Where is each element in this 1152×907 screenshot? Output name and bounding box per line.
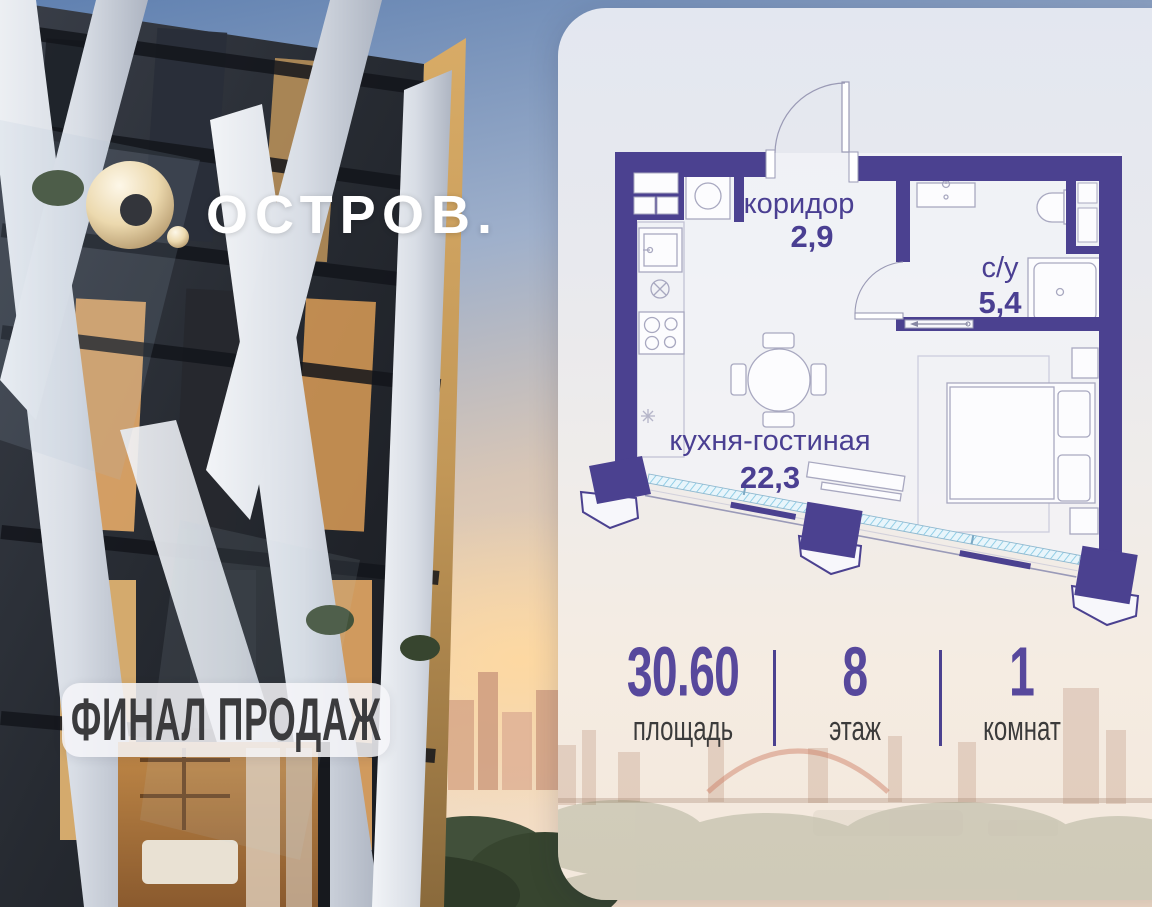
stove-icon — [639, 312, 684, 354]
room-label-bathroom: с/у — [981, 252, 1019, 284]
brand-logo: ОСТРОВ. — [84, 158, 504, 258]
washing-machine-icon — [686, 174, 730, 219]
tower — [0, 0, 466, 907]
stats-divider — [773, 650, 776, 746]
room-area-corridor: 2,9 — [790, 219, 833, 254]
apartment-stats: 30.60 площадь 8 этаж 1 комнат — [558, 638, 1152, 768]
stat-area-value: 30.60 — [627, 637, 739, 706]
stat-rooms-value: 1 — [1009, 637, 1034, 706]
brand-logo-icon — [84, 158, 204, 258]
stat-area-label: площадь — [621, 711, 745, 746]
brand-name: ОСТРОВ. — [206, 184, 499, 246]
shower-icon — [1028, 258, 1102, 326]
bed-icon — [947, 383, 1095, 503]
stat-floor: 8 этаж — [820, 638, 889, 744]
stat-floor-value: 8 — [842, 637, 867, 706]
nightstand-top — [1072, 348, 1098, 378]
stat-floor-label: этаж — [829, 711, 881, 746]
room-area-kitchen: 22,3 — [740, 460, 800, 495]
nightstand-bottom — [1070, 508, 1098, 534]
stat-rooms-label: комнат — [983, 711, 1061, 746]
room-area-bathroom: 5,4 — [978, 285, 1022, 320]
sliding-door — [905, 320, 973, 328]
room-label-kitchen: кухня-гостиная — [669, 425, 870, 457]
final-sale-badge: ФИНАЛ ПРОДАЖ — [62, 683, 390, 757]
room-label-corridor: коридор — [744, 188, 855, 220]
kitchen-sink-icon — [639, 228, 682, 272]
fridge-mark-icon — [641, 409, 655, 423]
badge-label: ФИНАЛ ПРОДАЖ — [71, 685, 381, 754]
stats-divider — [939, 650, 942, 746]
floorplan-svg: коридор 2,9 с/у 5,4 кухня-гостиная 22,3 — [570, 60, 1152, 640]
stat-rooms: 1 комнат — [970, 638, 1074, 744]
stat-area: 30.60 площадь — [600, 638, 765, 744]
apartment-card[interactable]: коридор 2,9 с/у 5,4 кухня-гостиная 22,3 … — [558, 8, 1152, 900]
